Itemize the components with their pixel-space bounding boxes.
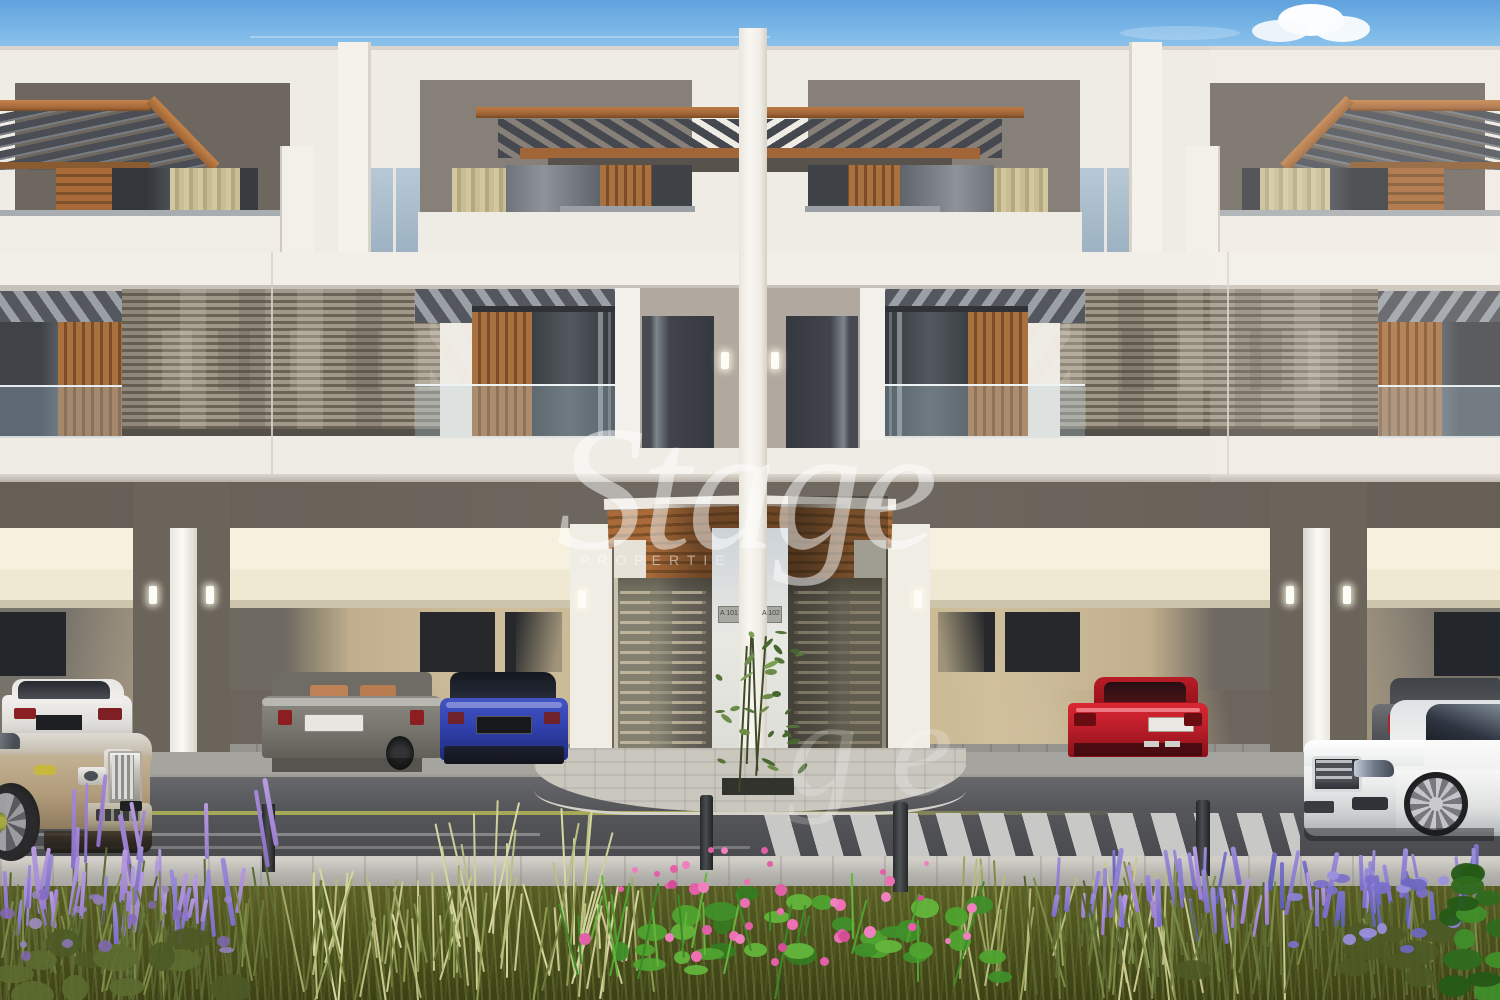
svg-text:ge: ge — [788, 671, 953, 826]
svg-text:PROPERTIE: PROPERTIE — [580, 552, 733, 568]
